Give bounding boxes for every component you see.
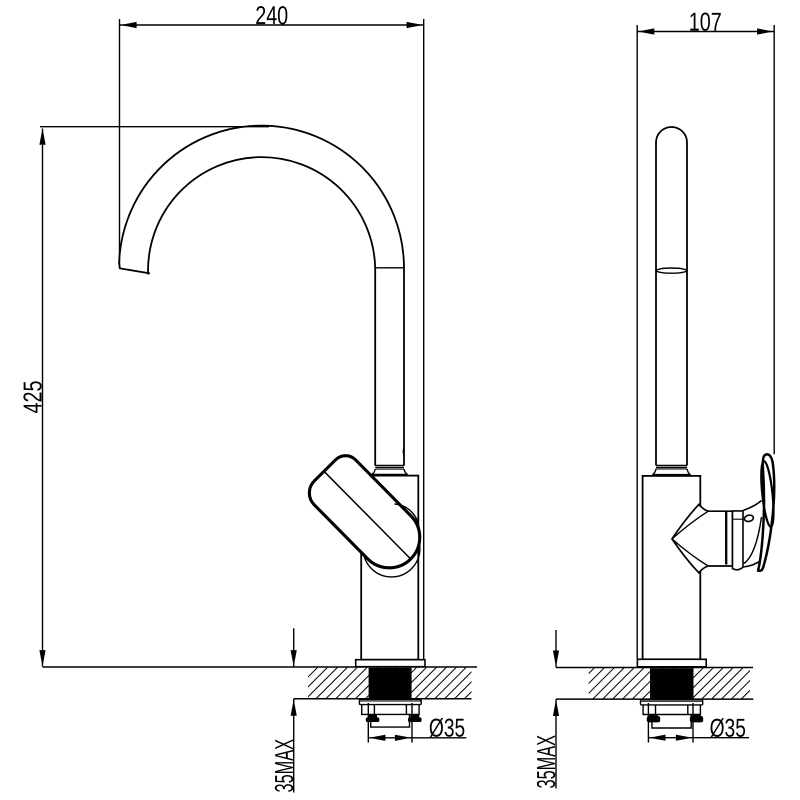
svg-text:107: 107 — [689, 7, 722, 37]
svg-text:Ø35: Ø35 — [429, 713, 465, 743]
svg-text:425: 425 — [18, 381, 48, 414]
svg-text:35MAX: 35MAX — [531, 735, 561, 789]
svg-text:35MAX: 35MAX — [269, 739, 299, 793]
svg-text:240: 240 — [255, 0, 288, 30]
svg-text:Ø35: Ø35 — [710, 713, 746, 743]
